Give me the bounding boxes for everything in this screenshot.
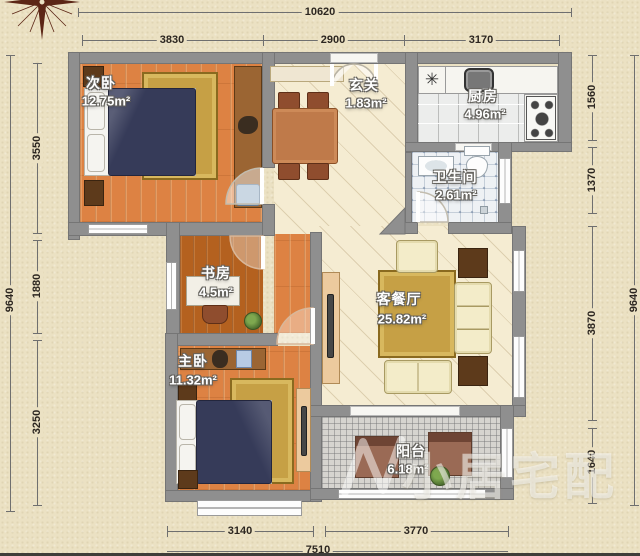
dim-right-total: 9640 (628, 285, 640, 315)
dining-chair-4 (307, 163, 329, 180)
tick (559, 35, 560, 46)
label-bathroom: 卫生间 (433, 167, 478, 187)
side-table-bottom (458, 356, 488, 386)
tv-living (327, 294, 334, 358)
laundry-basket (236, 184, 260, 206)
label-kitchen: 厨房 (468, 86, 498, 106)
dim-line-left-total (10, 55, 11, 512)
tick (78, 8, 79, 17)
tick (6, 55, 15, 56)
study-chair (202, 305, 228, 324)
label-living-dining: 客餐厅 (377, 289, 422, 309)
area-kitchen: 4.96m² (464, 107, 505, 122)
wardrobe2-clothes (238, 116, 258, 134)
dim-top-total: 10620 (302, 6, 339, 18)
tick (33, 505, 42, 506)
side-table-top (458, 248, 488, 278)
area-entry: 1.83m² (345, 96, 386, 111)
dining-table (272, 108, 338, 164)
wall-kitchen-right (558, 52, 572, 152)
compass-icon (4, 0, 80, 40)
tick (167, 526, 168, 537)
dim-right-seg-1: 1370 (586, 165, 598, 195)
wall-living-left (310, 232, 322, 502)
tick (313, 526, 314, 537)
nightstand2-bottom (84, 180, 104, 206)
floor-plan-canvas: ✳ (0, 0, 640, 556)
wall-study-bottom-a (166, 333, 278, 346)
tick (33, 63, 42, 64)
dining-chair-1 (278, 92, 300, 109)
dim-bottom-seg-0: 3140 (225, 525, 255, 537)
tick (33, 333, 42, 334)
tick (33, 240, 42, 241)
label-study: 书房 (201, 263, 231, 283)
area-master-bedroom: 11.32m² (169, 373, 217, 388)
area-living-dining: 25.82m² (378, 312, 426, 327)
tick (588, 213, 597, 214)
tick (325, 526, 326, 537)
window-bathroom (499, 158, 511, 204)
dim-top-seg-0: 3830 (157, 34, 187, 46)
tick (33, 233, 42, 234)
tick (588, 428, 597, 429)
window-living-1 (513, 250, 525, 292)
bed2-pillow-2 (87, 134, 105, 172)
dim-right-seg-0: 1560 (586, 82, 598, 112)
tv-master (301, 406, 307, 456)
area-bathroom: 2.61m² (435, 188, 476, 203)
dim-left-seg-1: 1880 (31, 271, 43, 301)
study-plant (244, 312, 262, 330)
bed-m-duvet (196, 400, 272, 484)
label-master-bedroom: 主卧 (178, 351, 208, 371)
label-secondary-bedroom: 次卧 (86, 73, 116, 93)
dim-line-right-total (634, 55, 635, 505)
nightstand-m-bottom (178, 470, 198, 489)
dim-bottom-seg-1: 3770 (401, 525, 431, 537)
floor-corridor (274, 234, 310, 333)
dining-chair-2 (307, 92, 329, 109)
tick (404, 35, 405, 46)
wall-kitchen-left (405, 52, 418, 152)
dim-top-seg-1: 2900 (318, 34, 348, 46)
sofa-main (454, 282, 492, 354)
entry-door-sill (330, 53, 378, 63)
watermark-text: 小居宅配 (402, 437, 618, 509)
wardrobe-m-shirt (236, 350, 252, 368)
tick (588, 140, 597, 141)
tick (82, 35, 83, 46)
tick (588, 226, 597, 227)
tick (33, 340, 42, 341)
hall-cabinet (270, 66, 344, 82)
toilet-tank (464, 146, 490, 156)
dim-right-seg-2: 3870 (586, 308, 598, 338)
bed-m-pillow-1 (179, 404, 196, 440)
loveseat (384, 360, 452, 394)
label-entry: 玄关 (349, 75, 379, 95)
area-study: 4.5m² (199, 285, 233, 300)
tick (263, 35, 264, 46)
dim-left-seg-2: 3250 (31, 407, 43, 437)
area-secondary-bedroom: 12.75m² (82, 94, 130, 109)
balcony-sliding-door (350, 406, 460, 416)
wall-bath-bottom-b (448, 222, 512, 234)
dim-left-seg-0: 3550 (31, 133, 43, 163)
floor-drain (480, 206, 488, 214)
dining-chair-3 (278, 163, 300, 180)
tick (630, 505, 639, 506)
stove (526, 96, 556, 140)
kitchen-fixture-box: ✳ (418, 66, 446, 94)
dim-line-bottom-total (167, 551, 508, 552)
dim-left-total: 9640 (4, 285, 16, 315)
tick (508, 526, 509, 537)
bay-window-master (197, 500, 302, 516)
kitchen-fixture-symbol: ✳ (419, 67, 445, 93)
tick (588, 55, 597, 56)
wardrobe-m-clothes (212, 350, 228, 368)
window-bedroom2 (88, 224, 148, 234)
tick (588, 147, 597, 148)
window-study (166, 262, 177, 310)
tick (588, 420, 597, 421)
window-living-2 (513, 336, 525, 398)
armchair (396, 240, 438, 273)
wall-top (68, 52, 572, 64)
dim-top-seg-2: 3170 (466, 34, 496, 46)
tick (6, 511, 15, 512)
wall-left-upper (68, 52, 80, 240)
tick (630, 55, 639, 56)
tick (571, 8, 572, 17)
wall-bedroom2-right-b (262, 204, 275, 236)
wall-bath-bottom-a (400, 222, 418, 234)
